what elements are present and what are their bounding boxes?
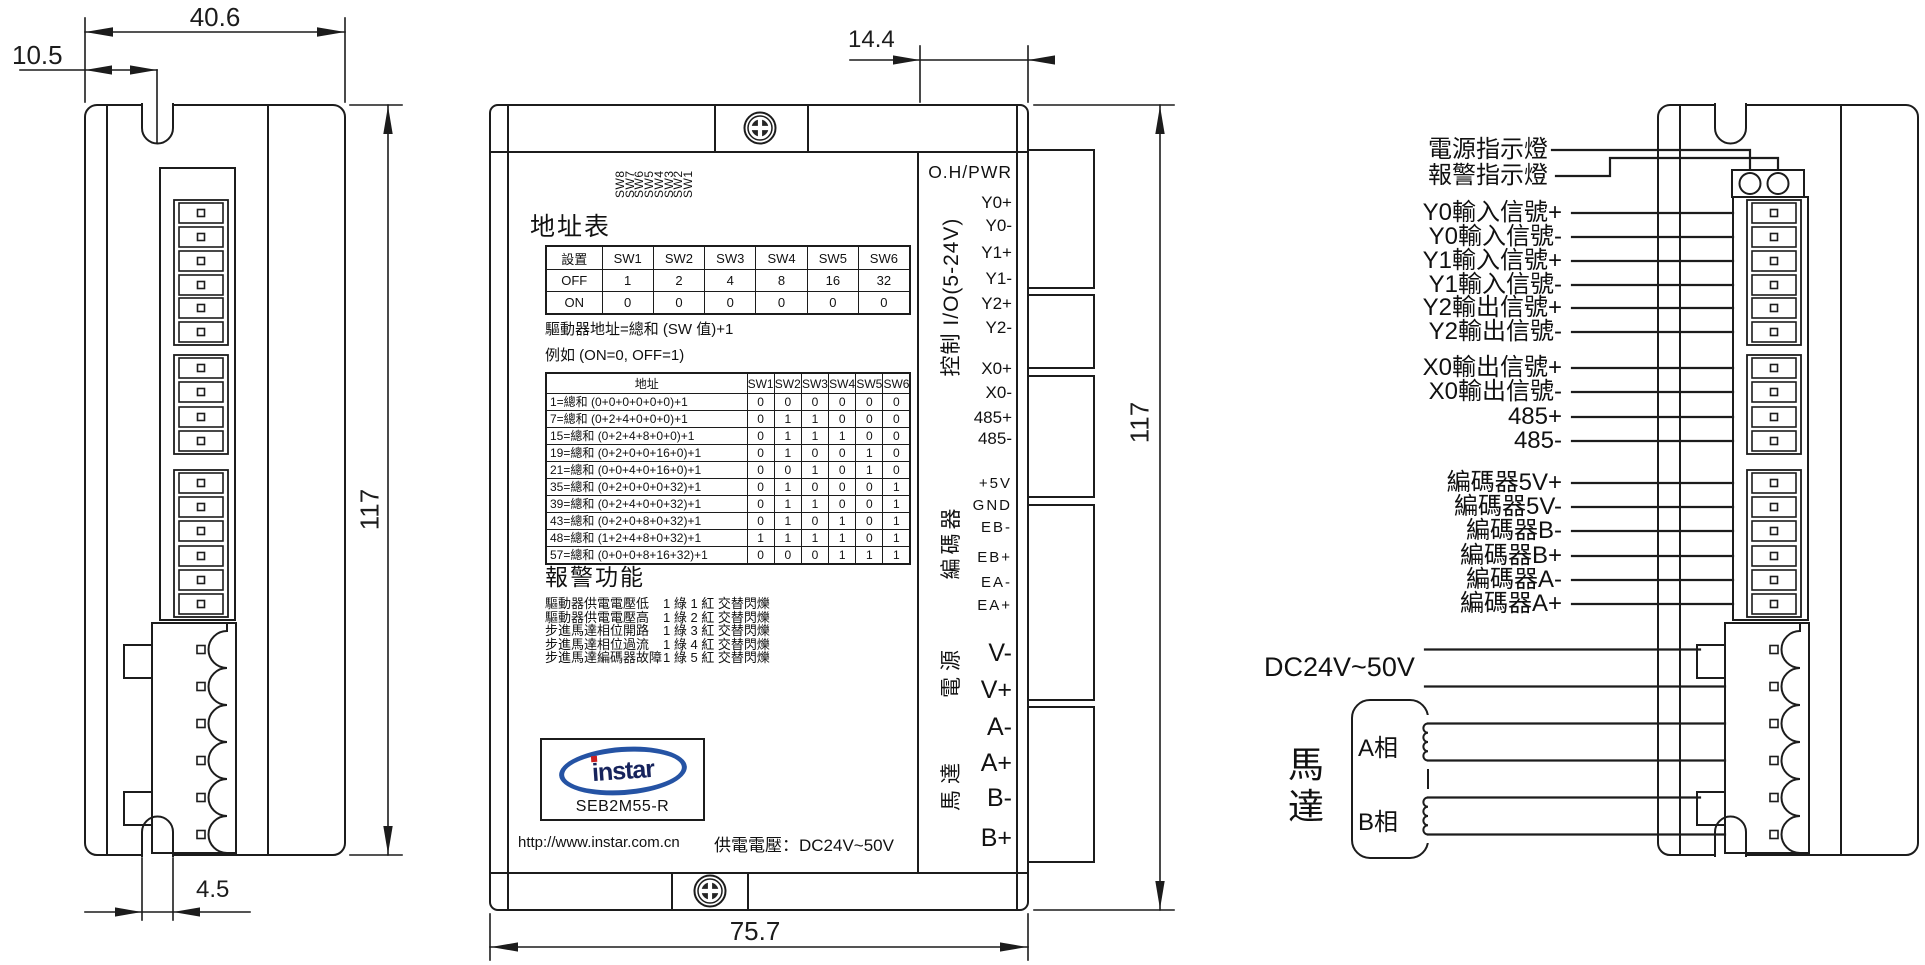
terminal-label: EB- bbox=[981, 520, 1012, 535]
power-connector bbox=[1697, 623, 1809, 853]
terminal-label: 485- bbox=[978, 430, 1012, 447]
dim-left-height: 117 bbox=[355, 480, 386, 540]
terminal-label: Y1- bbox=[986, 270, 1012, 287]
table-cell: 0 bbox=[883, 428, 910, 445]
table-cell: 1 bbox=[883, 530, 910, 547]
table-cell: 1 bbox=[856, 462, 883, 479]
table-cell: 0 bbox=[883, 394, 910, 411]
alarm-row: 步進馬達相位開路1 綠 3 紅 交替閃爍 bbox=[545, 624, 885, 638]
table-header-cell: SW1 bbox=[747, 373, 774, 394]
table-row: 1=總和 (0+0+0+0+0+0)+1000000 bbox=[546, 394, 910, 411]
alarm-fault: 驅動器供電電壓低 bbox=[545, 597, 663, 611]
alarm-title: 報警功能 bbox=[545, 558, 645, 592]
terminal-label: Y1+ bbox=[981, 244, 1012, 261]
table-cell: 0 bbox=[829, 394, 856, 411]
table-cell: 4 bbox=[705, 270, 756, 292]
table-row: 21=總和 (0+0+4+0+16+0)+1001010 bbox=[546, 462, 910, 479]
table-cell: 1 bbox=[883, 513, 910, 530]
terminal-blocks-edge bbox=[1028, 150, 1094, 862]
table-cell: 0 bbox=[705, 292, 756, 315]
table-cell: 32 bbox=[858, 270, 909, 292]
table-row: 15=總和 (0+2+4+8+0+0)+1011100 bbox=[546, 428, 910, 445]
terminal-label: A+ bbox=[981, 751, 1012, 776]
table-cell: 1 bbox=[774, 411, 801, 428]
overheat-power-label: O.H/PWR bbox=[900, 162, 1012, 183]
table-cell: 1 bbox=[602, 270, 653, 292]
alarm-code: 1 綠 4 紅 交替閃爍 bbox=[663, 638, 770, 652]
latch-tab bbox=[1697, 645, 1725, 678]
table-cell: 0 bbox=[829, 479, 856, 496]
group-label-motor: 馬達 bbox=[935, 749, 965, 819]
dim-left-notch-offset: 10.5 bbox=[12, 40, 63, 71]
table-cell: 0 bbox=[801, 479, 828, 496]
table-row: OFF12481632 bbox=[546, 270, 910, 292]
table-cell: 1 bbox=[774, 428, 801, 445]
terminal-label: V+ bbox=[981, 678, 1012, 703]
dim-mid-width: 75.7 bbox=[710, 916, 800, 947]
table-row: 35=總和 (0+2+0+0+0+32)+1010001 bbox=[546, 479, 910, 496]
terminal-label: EA+ bbox=[977, 598, 1012, 613]
table-cell: 0 bbox=[774, 547, 801, 565]
table-header-cell: SW3 bbox=[801, 373, 828, 394]
wire-label: 485- bbox=[1514, 428, 1562, 454]
table-cell: 1 bbox=[829, 428, 856, 445]
wire-label: 電源指示燈 bbox=[1428, 137, 1548, 163]
alarm-code: 1 綠 2 紅 交替閃爍 bbox=[663, 611, 770, 625]
table-row: 48=總和 (1+2+4+8+0+32)+1111101 bbox=[546, 530, 910, 547]
table-cell: 1 bbox=[801, 428, 828, 445]
table-row: ON000000 bbox=[546, 292, 910, 315]
table-cell: 0 bbox=[807, 292, 858, 315]
supply-voltage-label: 供電電壓：DC24V~50V bbox=[714, 831, 894, 856]
terminal-label: Y2- bbox=[986, 319, 1012, 336]
brand-logo: instar SEB2M55-R bbox=[540, 738, 705, 821]
terminal-label: 485+ bbox=[974, 409, 1012, 426]
dim-mid-flange: 14.4 bbox=[848, 26, 895, 54]
power-connector bbox=[124, 623, 236, 853]
left-side-view bbox=[20, 18, 402, 920]
terminal-label: B+ bbox=[981, 826, 1012, 851]
table-header-cell: SW6 bbox=[858, 246, 909, 270]
table-header-cell: SW5 bbox=[807, 246, 858, 270]
table-cell: 0 bbox=[747, 462, 774, 479]
wire-label: Y2輸出信號- bbox=[1429, 319, 1562, 345]
table-cell: 0 bbox=[883, 462, 910, 479]
table-cell: 0 bbox=[883, 445, 910, 462]
bottom-notch bbox=[142, 817, 173, 857]
table-cell: 1 bbox=[801, 496, 828, 513]
alarm-fault: 步進馬達相位開路 bbox=[545, 624, 663, 638]
table-cell: 19=總和 (0+2+0+0+16+0)+1 bbox=[546, 445, 747, 462]
table-cell: 2 bbox=[653, 270, 704, 292]
alarm-row: 驅動器供電電壓高1 綠 2 紅 交替閃爍 bbox=[545, 611, 885, 625]
table-cell: 1 bbox=[774, 496, 801, 513]
table-cell: 0 bbox=[747, 496, 774, 513]
alarm-row: 步進馬達編碼器故障1 綠 5 紅 交替閃爍 bbox=[545, 651, 885, 665]
table-cell: 1 bbox=[829, 513, 856, 530]
table-cell: 1 bbox=[856, 547, 883, 565]
table-cell: 1 bbox=[774, 530, 801, 547]
terminal-label: X0+ bbox=[981, 360, 1012, 377]
table-cell: 0 bbox=[829, 445, 856, 462]
dc-supply-label: DC24V~50V bbox=[1264, 652, 1415, 683]
terminal-label: Y0+ bbox=[981, 194, 1012, 211]
alarm-fault: 驅動器供電電壓高 bbox=[545, 611, 663, 625]
model-number: SEB2M55-R bbox=[542, 798, 703, 816]
phase-a-label: A相 bbox=[1358, 728, 1398, 763]
terminal-label: X0- bbox=[986, 384, 1012, 401]
table-header-cell: 地址 bbox=[546, 373, 747, 394]
alarm-code: 1 綠 5 紅 交替閃爍 bbox=[663, 651, 770, 665]
table-cell: 16 bbox=[807, 270, 858, 292]
wire-label: 編碼器B- bbox=[1466, 518, 1562, 544]
table-cell: 8 bbox=[756, 270, 807, 292]
dim-left-width: 40.6 bbox=[170, 2, 260, 33]
motor-symbol bbox=[1352, 700, 1725, 858]
table-cell: 1 bbox=[774, 513, 801, 530]
table-cell: 1 bbox=[829, 547, 856, 565]
table-cell: 43=總和 (0+2+0+8+0+32)+1 bbox=[546, 513, 747, 530]
table-cell: 0 bbox=[747, 547, 774, 565]
table-header-cell: SW2 bbox=[774, 373, 801, 394]
alarm-fault: 步進馬達編碼器故障 bbox=[545, 651, 663, 665]
address-table-title: 地址表 bbox=[530, 207, 611, 243]
table-cell: 0 bbox=[747, 479, 774, 496]
table-cell: 1 bbox=[801, 411, 828, 428]
logo-dot-icon bbox=[590, 756, 596, 762]
table-cell: 0 bbox=[747, 445, 774, 462]
table-row: 39=總和 (0+2+4+0+0+32)+1011001 bbox=[546, 496, 910, 513]
table-cell: 1 bbox=[883, 496, 910, 513]
table-header-cell: 設置 bbox=[546, 246, 602, 270]
group-label-power: 電源 bbox=[935, 636, 965, 706]
brand-name: instar bbox=[591, 754, 655, 787]
terminal-label: B- bbox=[987, 786, 1012, 811]
table-row: 43=總和 (0+2+0+8+0+32)+1010101 bbox=[546, 513, 910, 530]
dip-label: SW1 bbox=[682, 170, 694, 198]
table-header-cell: SW3 bbox=[705, 246, 756, 270]
table-cell: 7=總和 (0+2+4+0+0+0)+1 bbox=[546, 411, 747, 428]
table-cell: 0 bbox=[856, 513, 883, 530]
alarm-list: 驅動器供電電壓低1 綠 1 紅 交替閃爍 驅動器供電電壓高1 綠 2 紅 交替閃… bbox=[545, 597, 885, 665]
table-header-cell: SW5 bbox=[856, 373, 883, 394]
driver-datasheet-diagram: 40.6 10.5 117 4.5 14.4 117 75.7 SW8 SW7 … bbox=[0, 0, 1925, 965]
table-cell: 0 bbox=[856, 496, 883, 513]
table-cell: 0 bbox=[801, 547, 828, 565]
website-url: http://www.instar.com.cn bbox=[518, 834, 680, 851]
table-cell: 1 bbox=[856, 445, 883, 462]
group-label-encoder: 編碼器 bbox=[935, 497, 965, 587]
table-row: 7=總和 (0+2+4+0+0+0)+1011000 bbox=[546, 411, 910, 428]
table-header-cell: SW4 bbox=[756, 246, 807, 270]
alarm-code: 1 綠 1 紅 交替閃爍 bbox=[663, 597, 770, 611]
table-cell: 1=總和 (0+0+0+0+0+0)+1 bbox=[546, 394, 747, 411]
table-cell: 0 bbox=[774, 394, 801, 411]
table-cell: 0 bbox=[856, 394, 883, 411]
terminal-label: EA- bbox=[981, 575, 1012, 590]
table-cell: 1 bbox=[774, 479, 801, 496]
table-cell: 35=總和 (0+2+0+0+0+32)+1 bbox=[546, 479, 747, 496]
table-cell: 0 bbox=[653, 292, 704, 315]
alarm-fault: 步進馬達相位過流 bbox=[545, 638, 663, 652]
table-cell: 0 bbox=[856, 411, 883, 428]
table-cell: 0 bbox=[747, 513, 774, 530]
table-cell: 1 bbox=[829, 530, 856, 547]
terminal-label: GND bbox=[973, 498, 1012, 513]
table-cell: 1 bbox=[883, 547, 910, 565]
alarm-code: 1 綠 3 紅 交替閃爍 bbox=[663, 624, 770, 638]
terminal-label: V- bbox=[988, 641, 1012, 666]
table-cell: 1 bbox=[801, 530, 828, 547]
motor-label: 馬達 bbox=[1288, 744, 1328, 828]
table-cell: 0 bbox=[856, 428, 883, 445]
alarm-row: 驅動器供電電壓低1 綠 1 紅 交替閃爍 bbox=[545, 597, 885, 611]
logo-oval: instar bbox=[557, 743, 688, 800]
phase-b-label: B相 bbox=[1358, 802, 1398, 837]
table-cell: 0 bbox=[829, 411, 856, 428]
dim-left-notch-width: 4.5 bbox=[196, 876, 229, 904]
table-cell: 0 bbox=[883, 411, 910, 428]
latch-tab bbox=[124, 645, 152, 678]
signal-terminal-strip bbox=[1733, 197, 1808, 620]
table-cell: 0 bbox=[801, 513, 828, 530]
wire-label: X0輸出信號- bbox=[1429, 379, 1562, 405]
table-cell: 0 bbox=[747, 411, 774, 428]
table-cell: 0 bbox=[747, 394, 774, 411]
table-cell: 48=總和 (1+2+4+8+0+32)+1 bbox=[546, 530, 747, 547]
table-cell: 21=總和 (0+0+4+0+16+0)+1 bbox=[546, 462, 747, 479]
table-cell: ON bbox=[546, 292, 602, 315]
screw-icon bbox=[745, 113, 776, 144]
table-cell: 1 bbox=[747, 530, 774, 547]
screw-icon bbox=[695, 876, 726, 907]
terminal-label: Y2+ bbox=[981, 295, 1012, 312]
dim-mid-height: 117 bbox=[1125, 393, 1156, 453]
table-row: 19=總和 (0+2+0+0+16+0)+1010010 bbox=[546, 445, 910, 462]
address-formula-note: 驅動器地址=總和 (SW 值)+1 bbox=[545, 318, 733, 339]
sw-value-table: 設置SW1SW2SW3SW4SW5SW6OFF12481632ON000000 bbox=[545, 245, 911, 315]
terminal-label: +5V bbox=[979, 476, 1012, 491]
table-cell: 1 bbox=[883, 479, 910, 496]
terminal-label: EB+ bbox=[977, 550, 1012, 565]
address-example-note: 例如 (ON=0, OFF=1) bbox=[545, 344, 684, 365]
terminal-label: Y0- bbox=[986, 217, 1012, 234]
table-cell: 1 bbox=[774, 445, 801, 462]
table-cell: 0 bbox=[829, 496, 856, 513]
address-example-table: 地址SW1SW2SW3SW4SW5SW61=總和 (0+0+0+0+0+0)+1… bbox=[545, 372, 911, 565]
bottom-notch bbox=[1715, 817, 1746, 857]
table-cell: 15=總和 (0+2+4+8+0+0)+1 bbox=[546, 428, 747, 445]
table-cell: 0 bbox=[602, 292, 653, 315]
terminal-label: A- bbox=[987, 715, 1012, 740]
table-cell: OFF bbox=[546, 270, 602, 292]
led-indicators bbox=[1732, 170, 1804, 197]
table-cell: 0 bbox=[756, 292, 807, 315]
table-cell: 0 bbox=[856, 530, 883, 547]
table-header-cell: SW6 bbox=[883, 373, 910, 394]
table-cell: 39=總和 (0+2+4+0+0+32)+1 bbox=[546, 496, 747, 513]
group-label-control-io: 控制 I/O(5-24V) bbox=[935, 202, 965, 392]
line-art bbox=[0, 0, 1925, 965]
signal-terminal-strip bbox=[160, 168, 235, 620]
top-notch bbox=[1715, 104, 1746, 144]
wire-label: 報警指示燈 bbox=[1428, 163, 1548, 189]
table-cell: 0 bbox=[801, 394, 828, 411]
table-cell: 0 bbox=[801, 445, 828, 462]
table-cell: 1 bbox=[801, 462, 828, 479]
table-header-cell: SW4 bbox=[829, 373, 856, 394]
table-cell: 0 bbox=[856, 479, 883, 496]
table-cell: 0 bbox=[829, 462, 856, 479]
table-header-cell: SW2 bbox=[653, 246, 704, 270]
table-cell: 0 bbox=[774, 462, 801, 479]
table-cell: 0 bbox=[858, 292, 909, 315]
wire-label: 編碼器A+ bbox=[1460, 591, 1562, 617]
table-cell: 0 bbox=[747, 428, 774, 445]
alarm-row: 步進馬達相位過流1 綠 4 紅 交替閃爍 bbox=[545, 638, 885, 652]
table-header-cell: SW1 bbox=[602, 246, 653, 270]
